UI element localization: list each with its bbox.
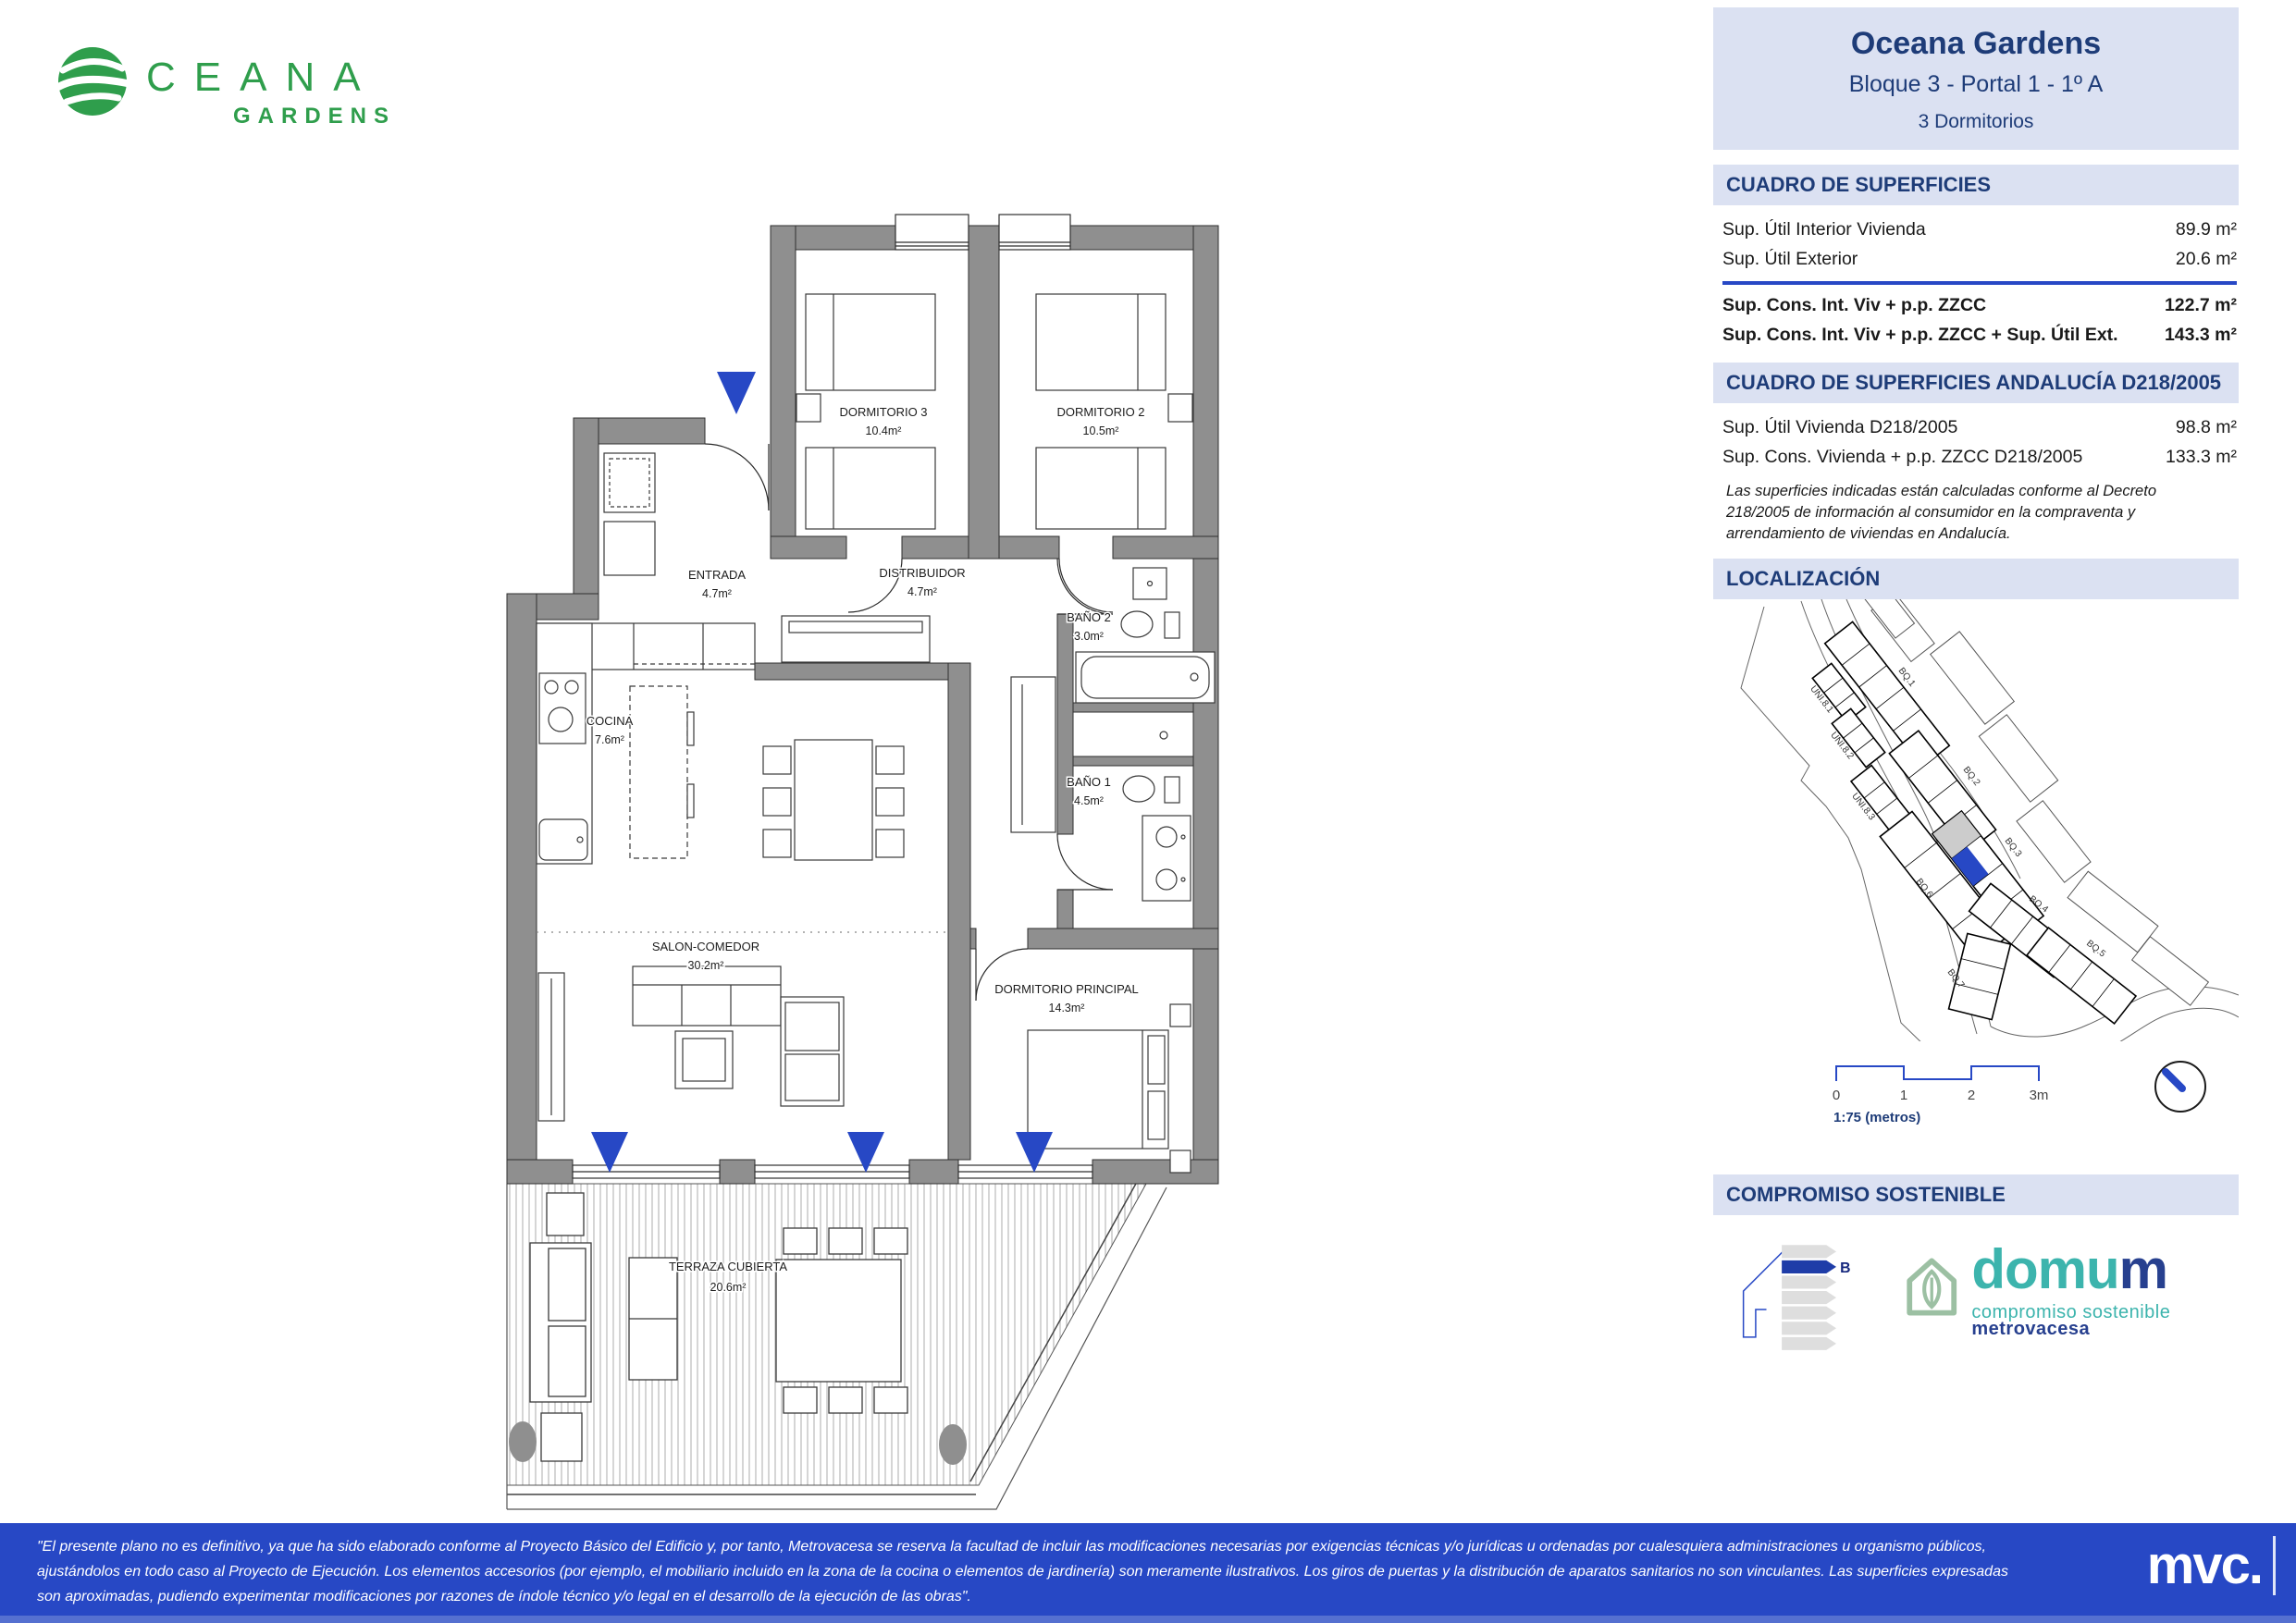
block-label: BQ.5 [2084,939,2107,960]
footer-disclaimer: "El presente plano no es definitivo, ya … [0,1523,2296,1623]
disclaimer-line: "El presente plano no es definitivo, ya … [37,1535,2296,1560]
brand-subword: GARDENS [233,104,396,129]
energy-bar-b [1782,1260,1836,1273]
surface-label: Sup. Útil Interior Vivienda [1722,219,1926,240]
domum-tagline-brand: metrovacesa [1971,1319,2090,1339]
scale-tick: 1 [1900,1088,1907,1103]
room-label: SALON-COMEDOR [652,940,759,953]
scale-bar: 0 1 2 3m 1:75 (metros) [1713,1051,2239,1137]
block-label: BQ.3 [2003,836,2024,859]
disclaimer-line: ajustándolos en todo caso al Proyecto de… [37,1560,2296,1585]
entrance-arrow-icon [717,372,756,414]
surface-value: 133.3 m² [2166,447,2237,468]
unit-subtitle: Bloque 3 - Portal 1 - 1º A [1722,71,2229,98]
room-area: 7.6m² [595,733,624,746]
surface-row: Sup. Útil Exterior 20.6 m² [1722,242,2237,272]
surface-value: 20.6 m² [2176,249,2237,270]
info-panel: Oceana Gardens Bloque 3 - Portal 1 - 1º … [1713,7,2239,1371]
surface-label: Sup. Útil Exterior [1722,249,1858,270]
energy-bars [1782,1246,1836,1351]
surface-value: 89.9 m² [2176,219,2237,240]
surface-label: Sup. Cons. Int. Viv + p.p. ZZCC [1722,295,1986,316]
room-label: BAÑO 1 [1067,775,1111,789]
surface-value: 143.3 m² [2165,325,2237,346]
decree-note: Las superficies indicadas están calculad… [1713,470,2216,544]
mvc-logo: mvc. [2147,1536,2276,1595]
surface-label: Sup. Útil Vivienda D218/2005 [1722,417,1957,438]
andalucia-table: Sup. Útil Vivienda D218/2005 98.8 m² Sup… [1713,403,2239,470]
page-title: Oceana Gardens [1722,26,2229,62]
domum-wordmark-m: m [2119,1238,2167,1300]
room-label: TERRAZA CUBIERTA [669,1260,787,1273]
terrace-column [509,1421,537,1462]
oceana-globe-icon [56,44,130,118]
room-label: DORMITORIO 3 [839,405,927,419]
blue-divider [1722,281,2237,285]
sostenible-content: B domum compromiso sostenible metrovaces… [1737,1230,2239,1371]
scale-tick: 0 [1833,1088,1840,1103]
room-label: ENTRADA [688,568,746,582]
scale-caption: 1:75 (metros) [1833,1110,1920,1125]
scale-and-compass: 0 1 2 3m 1:75 (metros) [1713,1051,2239,1141]
compass-icon [2155,1062,2205,1112]
surface-total-row: Sup. Cons. Int. Viv + p.p. ZZCC 122.7 m² [1722,289,2237,318]
surface-label: Sup. Cons. Int. Viv + p.p. ZZCC + Sup. Ú… [1722,325,2118,346]
room-area: 4.7m² [702,587,732,600]
room-label: COCINA [586,714,634,728]
surface-value: 122.7 m² [2165,295,2237,316]
room-label: DORMITORIO PRINCIPAL [994,982,1139,996]
terrace-column [939,1424,967,1465]
bedroom-count: 3 Dormitorios [1722,111,2229,133]
terrace [507,1182,1167,1509]
room-area: 4.7m² [907,585,937,598]
domum-house-icon [1897,1245,1966,1324]
scale-tick: 3m [2030,1088,2049,1103]
energy-label-icon: B [1737,1230,1864,1371]
disclaimer-line: son aproximadas, pudiendo experimentar m… [37,1585,2296,1610]
surface-row: Sup. Útil Vivienda D218/2005 98.8 m² [1722,411,2237,440]
surface-value: 98.8 m² [2176,417,2237,438]
room-area: 10.4m² [866,424,902,437]
room-area: 30.2m² [688,959,724,972]
localizacion-heading: LOCALIZACIÓN [1713,559,2239,599]
room-area: 14.3m² [1049,1002,1085,1014]
room-area: 10.5m² [1083,424,1119,437]
surface-label: Sup. Cons. Vivienda + p.p. ZZCC D218/200… [1722,447,2082,468]
room-area: 3.0m² [1074,630,1104,643]
room-label: DORMITORIO 2 [1056,405,1144,419]
room-area: 20.6m² [710,1281,747,1294]
domum-wordmark: domu [1971,1238,2118,1300]
scale-tick: 2 [1968,1088,1975,1103]
surfaces-heading: CUADRO DE SUPERFICIES [1713,165,2239,205]
room-area: 4.5m² [1074,794,1104,807]
room-label: BAÑO 2 [1067,610,1111,624]
unit-header: Oceana Gardens Bloque 3 - Portal 1 - 1º … [1713,7,2239,150]
room-label: DISTRIBUIDOR [879,566,965,580]
sostenible-heading: COMPROMISO SOSTENIBLE [1713,1174,2239,1215]
site-map: BQ.1 BQ.2 BQ.3 BQ.4 BQ.5 BQ.6 BQ.7 UNI.8… [1713,599,2239,1041]
domum-logo: domum compromiso sostenible metrovacesa [1897,1245,2239,1337]
brand-word: CEANA [146,57,396,98]
surface-row: Sup. Cons. Vivienda + p.p. ZZCC D218/200… [1722,440,2237,470]
energy-rating-letter: B [1840,1260,1850,1276]
surface-row: Sup. Útil Interior Vivienda 89.9 m² [1722,213,2237,242]
andalucia-heading: CUADRO DE SUPERFICIES ANDALUCÍA D218/200… [1713,363,2239,403]
brand-logo: CEANA GARDENS [56,44,396,129]
surfaces-table: Sup. Útil Interior Vivienda 89.9 m² Sup.… [1713,205,2239,348]
floor-plan: DORMITORIO 3 10.4m² DORMITORIO 2 10.5m² … [495,205,1244,1518]
surface-total-row: Sup. Cons. Int. Viv + p.p. ZZCC + Sup. Ú… [1722,318,2237,348]
